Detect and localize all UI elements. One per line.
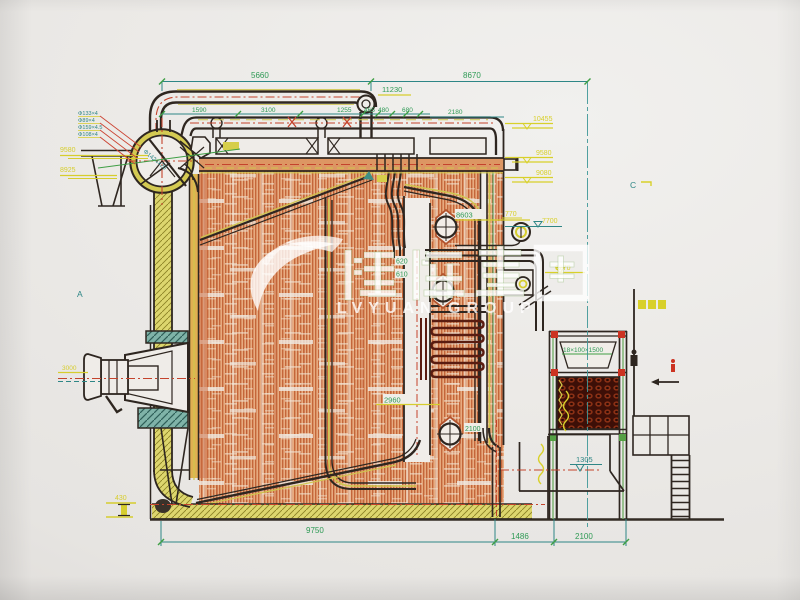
svg-text:5660: 5660 <box>251 71 269 80</box>
svg-text:11230: 11230 <box>382 85 402 94</box>
svg-text:1305: 1305 <box>576 455 593 464</box>
svg-text:680: 680 <box>402 107 413 114</box>
svg-text:18×100×1500: 18×100×1500 <box>563 347 604 354</box>
svg-text:465: 465 <box>364 107 375 114</box>
svg-text:620: 620 <box>396 259 408 266</box>
svg-text:LVYUAN GROUP: LVYUAN GROUP <box>337 300 537 317</box>
svg-text:2100: 2100 <box>465 426 481 433</box>
svg-text:3100: 3100 <box>261 107 276 114</box>
svg-text:8670: 8670 <box>463 71 481 80</box>
svg-text:770: 770 <box>505 211 517 218</box>
svg-text:C: C <box>630 180 636 190</box>
svg-text:7700: 7700 <box>542 218 558 225</box>
svg-text:1255: 1255 <box>337 107 352 114</box>
svg-text:610: 610 <box>396 272 408 279</box>
svg-text:8603: 8603 <box>456 211 473 220</box>
svg-text:2180: 2180 <box>448 109 463 116</box>
svg-text:A: A <box>77 289 83 299</box>
svg-text:430: 430 <box>115 495 127 502</box>
svg-text:9750: 9750 <box>306 526 324 535</box>
svg-text:2960: 2960 <box>384 396 401 405</box>
svg-text:2100: 2100 <box>575 532 593 541</box>
svg-text:3000: 3000 <box>62 365 77 372</box>
svg-text:10455: 10455 <box>533 116 553 123</box>
svg-text:8925: 8925 <box>60 167 76 174</box>
svg-text:9080: 9080 <box>536 170 552 177</box>
svg-text:480: 480 <box>378 107 389 114</box>
svg-text:1486: 1486 <box>511 532 529 541</box>
svg-text:1590: 1590 <box>192 107 207 114</box>
svg-text:9580: 9580 <box>536 150 552 157</box>
svg-text:9580: 9580 <box>60 147 76 154</box>
